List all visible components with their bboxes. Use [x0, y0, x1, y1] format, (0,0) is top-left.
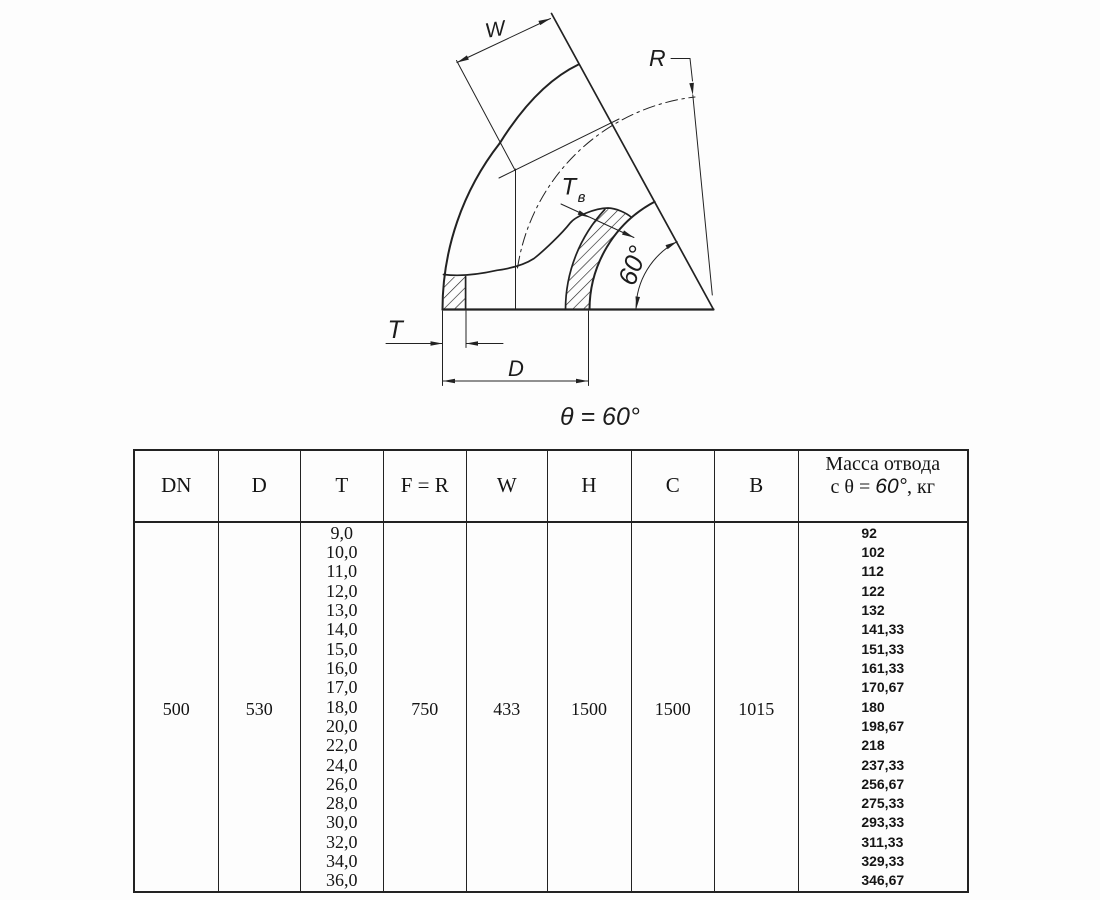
- svg-text:D: D: [508, 356, 524, 381]
- svg-text:T: T: [388, 316, 405, 344]
- svg-text:W: W: [483, 16, 509, 42]
- svg-text:R: R: [649, 45, 666, 71]
- svg-text:θ = 60°: θ = 60°: [560, 403, 640, 431]
- svg-text:Tв: Tв: [562, 174, 586, 207]
- svg-text:60°: 60°: [612, 242, 654, 289]
